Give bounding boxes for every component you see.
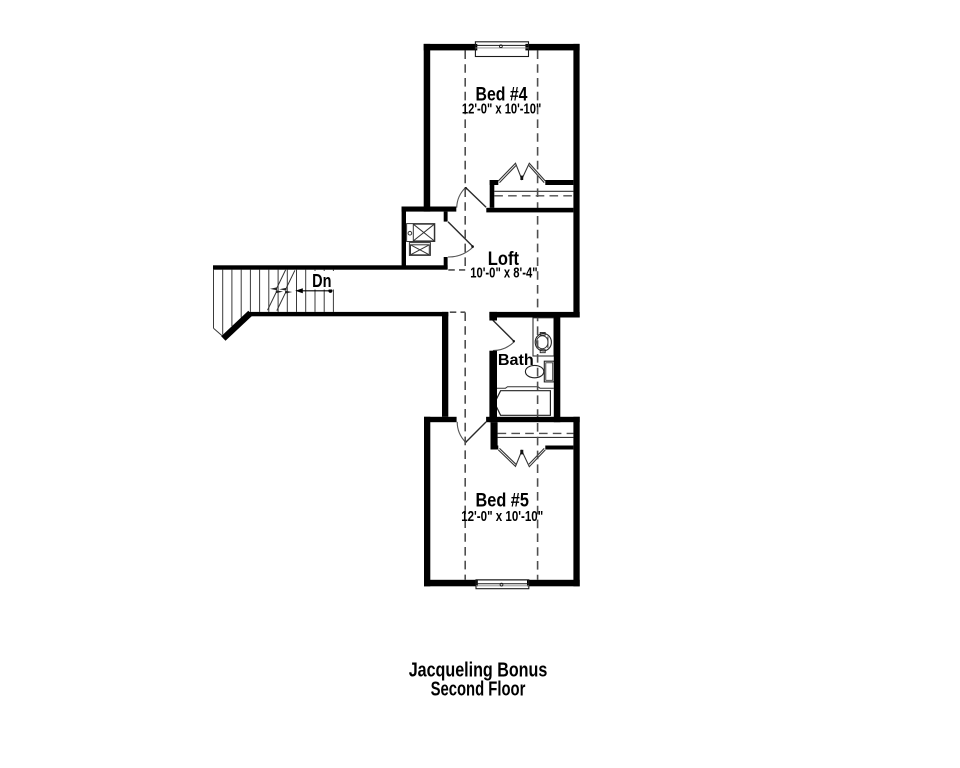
- svg-text:Second Floor: Second Floor: [431, 679, 526, 701]
- svg-text:12'-0" x 10'-10": 12'-0" x 10'-10": [461, 509, 543, 525]
- svg-text:Dn: Dn: [312, 271, 331, 291]
- svg-text:12'-0" x 10'-10": 12'-0" x 10'-10": [462, 102, 541, 118]
- svg-text:Bath: Bath: [498, 352, 534, 369]
- svg-text:10'-0" x 8'-4": 10'-0" x 8'-4": [470, 266, 537, 282]
